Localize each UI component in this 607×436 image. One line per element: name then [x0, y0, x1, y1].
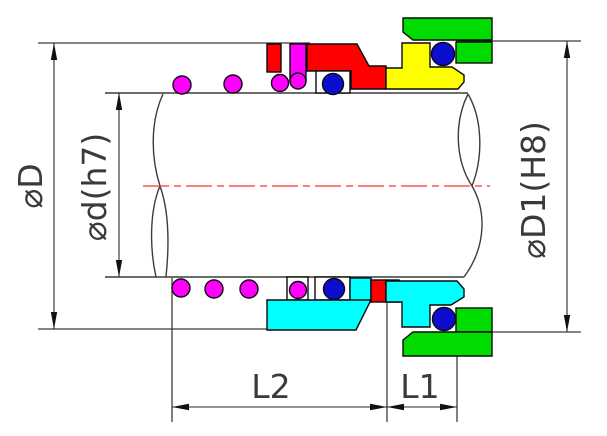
spring-coil [224, 75, 242, 93]
spring-coil [290, 282, 307, 299]
arrowhead-left [172, 404, 189, 410]
arrowhead-up [51, 43, 57, 60]
spring-coil [290, 73, 306, 89]
lower-seal-assembly [172, 277, 492, 356]
spring-coil [172, 279, 190, 297]
technical-drawing-canvas: ⌀D ⌀d(h7) ⌀D1(H8) L2 L1 [0, 0, 607, 436]
seat-o-ring [433, 308, 456, 331]
o-ring [323, 74, 344, 95]
rotary-seal-face [371, 280, 386, 302]
spring-coil [205, 280, 223, 298]
shaft-break-left-curve-b [152, 186, 160, 277]
gland-plate-step [456, 308, 492, 332]
spring-coil [173, 76, 191, 94]
o-ring [324, 279, 345, 300]
shaft-break-right-curve-b [468, 94, 480, 186]
rotary-ring-collar [350, 278, 371, 302]
arrowhead-down [116, 260, 122, 277]
arrowhead-right [440, 404, 457, 410]
set-screw [267, 44, 281, 72]
rotary-ring-body [267, 300, 371, 330]
arrowhead-up [564, 41, 570, 58]
label-length-l1: L1 [400, 367, 439, 406]
arrowhead-down [51, 312, 57, 329]
gland-plate [403, 18, 492, 40]
spring-coil [240, 280, 258, 298]
upper-seal-assembly [173, 18, 492, 95]
label-seat-diameter: ⌀D1(H8) [514, 121, 553, 259]
arrowhead-right [370, 404, 387, 410]
arrowhead-down [564, 315, 570, 332]
label-length-l2: L2 [251, 367, 290, 406]
spring-coil [272, 75, 289, 92]
label-outer-diameter: ⌀D [11, 163, 50, 208]
gland-plate [403, 332, 492, 356]
mechanical-seal-drawing: ⌀D ⌀d(h7) ⌀D1(H8) L2 L1 [0, 0, 607, 436]
seat-o-ring [432, 43, 455, 66]
arrowhead-up [116, 93, 122, 110]
label-shaft-diameter: ⌀d(h7) [75, 133, 114, 241]
gland-plate-step [456, 42, 492, 63]
